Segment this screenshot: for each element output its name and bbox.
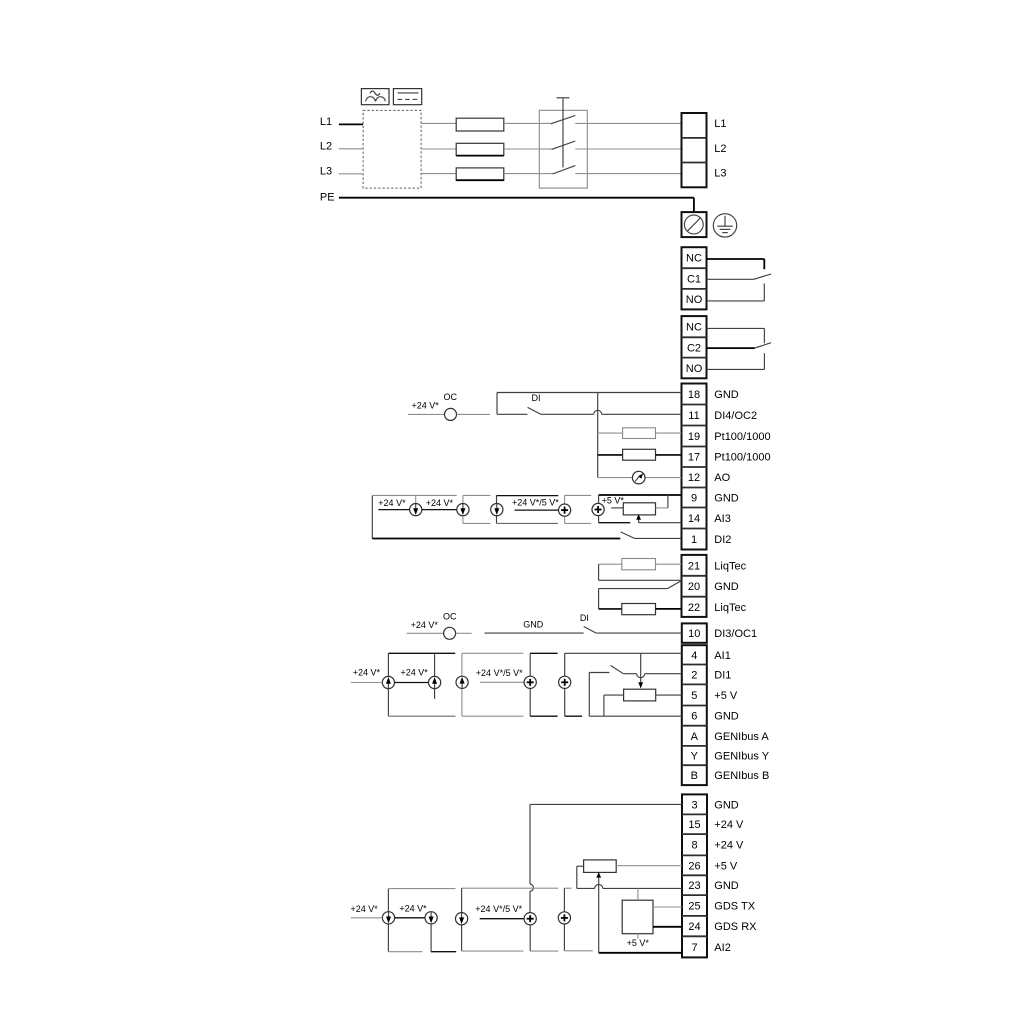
svg-text:L2: L2 bbox=[714, 143, 726, 155]
svg-text:+5 V: +5 V bbox=[714, 690, 738, 702]
svg-text:DI2: DI2 bbox=[714, 534, 731, 546]
svg-text:DI3/OC1: DI3/OC1 bbox=[714, 628, 757, 640]
svg-text:Pt100/1000: Pt100/1000 bbox=[714, 431, 770, 443]
svg-text:+24 V*: +24 V* bbox=[412, 401, 440, 411]
svg-text:2: 2 bbox=[691, 669, 697, 681]
svg-text:GND: GND bbox=[714, 581, 739, 593]
svg-text:PE: PE bbox=[320, 191, 335, 203]
svg-text:AI1: AI1 bbox=[714, 650, 731, 662]
svg-text:+5 V: +5 V bbox=[714, 860, 738, 872]
svg-text:GENIbus A: GENIbus A bbox=[714, 731, 769, 743]
svg-text:B: B bbox=[691, 770, 698, 782]
svg-text:12: 12 bbox=[688, 472, 700, 484]
svg-text:+24 V*: +24 V* bbox=[378, 498, 406, 508]
svg-text:L2: L2 bbox=[320, 141, 332, 153]
svg-text:DI: DI bbox=[580, 613, 589, 623]
svg-text:L3: L3 bbox=[320, 166, 332, 178]
svg-text:C1: C1 bbox=[687, 274, 701, 286]
svg-text:+24 V*: +24 V* bbox=[399, 904, 427, 914]
svg-text:DI4/OC2: DI4/OC2 bbox=[714, 410, 757, 422]
svg-text:GDS RX: GDS RX bbox=[714, 921, 757, 933]
svg-text:+24 V*: +24 V* bbox=[351, 904, 379, 914]
svg-text:DI: DI bbox=[532, 393, 541, 403]
svg-text:21: 21 bbox=[688, 560, 700, 572]
svg-text:NC: NC bbox=[686, 322, 702, 334]
svg-text:4: 4 bbox=[691, 650, 697, 662]
svg-text:+24 V*: +24 V* bbox=[411, 620, 439, 630]
svg-text:+24 V: +24 V bbox=[714, 819, 744, 831]
svg-text:5: 5 bbox=[691, 690, 697, 702]
svg-text:OC: OC bbox=[443, 612, 457, 622]
svg-text:10: 10 bbox=[688, 628, 700, 640]
svg-text:23: 23 bbox=[688, 880, 700, 892]
svg-text:AI3: AI3 bbox=[714, 513, 731, 525]
svg-text:GND: GND bbox=[714, 799, 739, 811]
svg-text:C2: C2 bbox=[687, 342, 701, 354]
svg-text:A: A bbox=[691, 731, 699, 743]
svg-text:+24 V*/5 V*: +24 V*/5 V* bbox=[476, 668, 523, 678]
svg-text:Y: Y bbox=[691, 751, 699, 763]
svg-text:+5 V*: +5 V* bbox=[627, 938, 650, 948]
svg-text:+5 V*: +5 V* bbox=[602, 496, 625, 506]
svg-text:GND: GND bbox=[714, 493, 739, 505]
svg-text:GDS TX: GDS TX bbox=[714, 901, 755, 913]
svg-text:6: 6 bbox=[691, 711, 697, 723]
svg-text:+24 V*/5 V*: +24 V*/5 V* bbox=[475, 904, 522, 914]
svg-text:LiqTec: LiqTec bbox=[714, 602, 746, 614]
svg-text:22: 22 bbox=[688, 602, 700, 614]
svg-text:LiqTec: LiqTec bbox=[714, 560, 746, 572]
svg-text:7: 7 bbox=[691, 942, 697, 954]
svg-text:17: 17 bbox=[688, 452, 700, 464]
svg-text:GENIbus Y: GENIbus Y bbox=[714, 751, 769, 763]
svg-text:NO: NO bbox=[686, 363, 703, 375]
svg-text:26: 26 bbox=[688, 860, 700, 872]
svg-text:OC: OC bbox=[444, 392, 458, 402]
svg-text:19: 19 bbox=[688, 431, 700, 443]
svg-text:Pt100/1000: Pt100/1000 bbox=[714, 452, 770, 464]
svg-text:+24 V*/5 V*: +24 V*/5 V* bbox=[512, 498, 559, 508]
svg-text:+24 V*: +24 V* bbox=[426, 498, 454, 508]
svg-text:+24 V*: +24 V* bbox=[401, 668, 429, 678]
svg-text:+24 V: +24 V bbox=[714, 840, 744, 852]
svg-text:GND: GND bbox=[714, 711, 739, 723]
svg-text:1: 1 bbox=[691, 534, 697, 546]
svg-text:GND: GND bbox=[523, 620, 544, 630]
svg-text:NC: NC bbox=[686, 253, 702, 265]
svg-text:24: 24 bbox=[688, 921, 700, 933]
svg-text:18: 18 bbox=[688, 389, 700, 401]
svg-text:L1: L1 bbox=[714, 118, 726, 130]
svg-text:20: 20 bbox=[688, 581, 700, 593]
svg-text:9: 9 bbox=[691, 493, 697, 505]
svg-text:14: 14 bbox=[688, 513, 700, 525]
svg-text:L3: L3 bbox=[714, 168, 726, 180]
svg-text:AO: AO bbox=[714, 472, 730, 484]
svg-text:GENIbus B: GENIbus B bbox=[714, 770, 769, 782]
svg-text:NO: NO bbox=[686, 294, 703, 306]
svg-text:+24 V*: +24 V* bbox=[353, 668, 381, 678]
svg-text:11: 11 bbox=[688, 410, 699, 422]
svg-text:L1: L1 bbox=[320, 116, 332, 128]
svg-text:15: 15 bbox=[688, 819, 700, 831]
svg-text:AI2: AI2 bbox=[714, 942, 731, 954]
svg-text:3: 3 bbox=[691, 799, 697, 811]
svg-text:GND: GND bbox=[714, 880, 739, 892]
svg-text:25: 25 bbox=[688, 901, 700, 913]
svg-text:DI1: DI1 bbox=[714, 669, 731, 681]
svg-text:GND: GND bbox=[714, 389, 739, 401]
svg-text:8: 8 bbox=[691, 840, 697, 852]
